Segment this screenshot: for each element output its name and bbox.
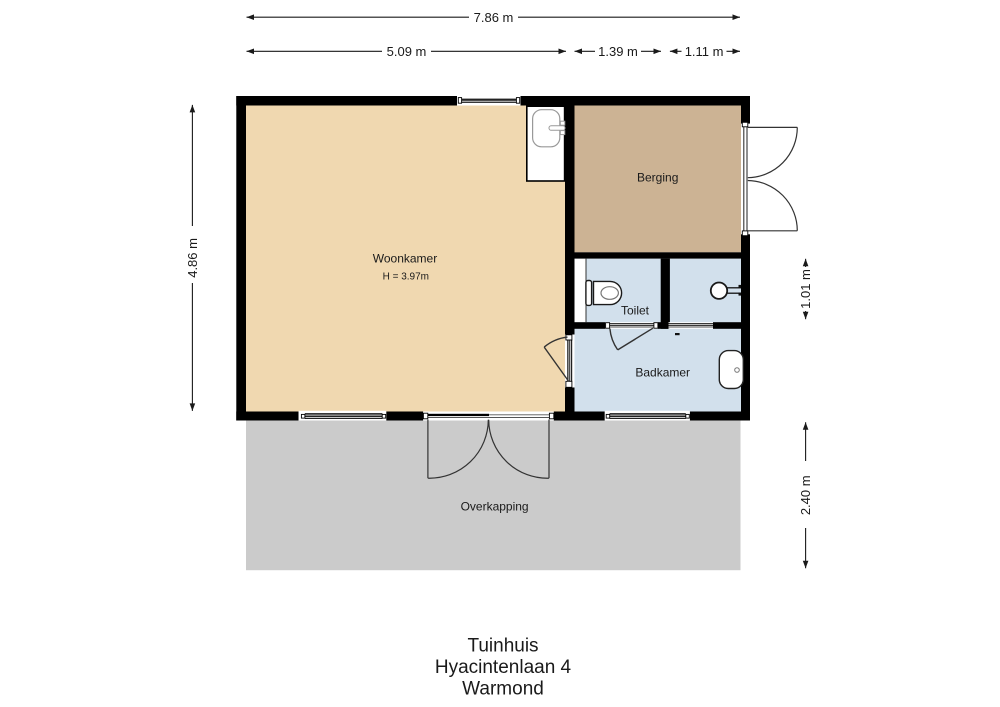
svg-text:Toilet: Toilet bbox=[621, 304, 650, 318]
svg-text:Hyacintenlaan 4: Hyacintenlaan 4 bbox=[435, 657, 572, 678]
svg-text:Overkapping: Overkapping bbox=[461, 499, 529, 513]
svg-text:Tuinhuis: Tuinhuis bbox=[467, 636, 538, 657]
svg-text:2.40 m: 2.40 m bbox=[798, 475, 813, 515]
svg-text:7.86 m: 7.86 m bbox=[474, 10, 514, 25]
svg-text:H = 3.97m: H = 3.97m bbox=[383, 272, 429, 283]
svg-text:1.11 m: 1.11 m bbox=[685, 44, 724, 59]
svg-text:Berging: Berging bbox=[637, 171, 678, 185]
svg-text:4.86 m: 4.86 m bbox=[185, 238, 200, 278]
svg-text:1.39 m: 1.39 m bbox=[598, 44, 638, 59]
svg-text:1.01 m: 1.01 m bbox=[798, 269, 813, 309]
svg-text:Badkamer: Badkamer bbox=[635, 366, 690, 380]
svg-text:Warmond: Warmond bbox=[462, 678, 544, 699]
svg-text:5.09 m: 5.09 m bbox=[387, 44, 427, 59]
svg-text:Woonkamer: Woonkamer bbox=[373, 252, 437, 266]
